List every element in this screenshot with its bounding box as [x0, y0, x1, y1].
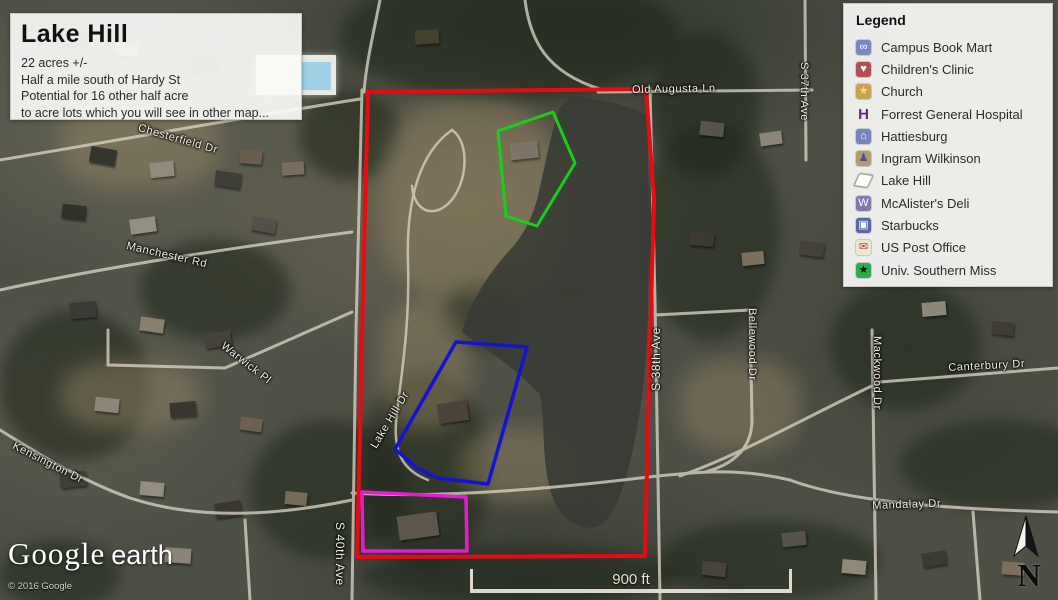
scale-bar: 900 ft — [470, 569, 792, 593]
street-label-s37: S 37th Ave — [798, 62, 810, 121]
north-indicator: N — [1004, 512, 1054, 592]
legend-item[interactable]: ▣ Starbucks — [854, 214, 1042, 236]
house-blob — [284, 491, 307, 506]
childrens-clinic-icon: ♥ — [856, 62, 871, 77]
info-line-acres: 22 acres +/- — [21, 55, 291, 72]
road-segment — [245, 520, 250, 600]
google-earth-logo: Googleearth — [8, 536, 173, 572]
street-label-bellewood: Bellewood Dr — [746, 308, 758, 381]
street-label-warwick: Warwick Pl — [219, 340, 274, 386]
house-blob — [799, 240, 825, 257]
hospital-icon: H — [856, 107, 871, 122]
legend-item-label: McAlister's Deli — [881, 196, 969, 211]
scale-label: 900 ft — [612, 571, 650, 588]
earth-logo-text: earth — [111, 540, 173, 570]
house-blob — [689, 231, 714, 247]
ingram-wilkinson-icon: ♟ — [856, 151, 871, 166]
street-label-s40: S 40th Ave — [333, 522, 347, 586]
house-blob — [94, 397, 119, 413]
info-box-title: Lake Hill — [21, 20, 291, 49]
street-label-mandalay: Mandalay Dr — [872, 498, 941, 512]
house-blob — [841, 559, 866, 575]
house-blob — [282, 161, 305, 176]
field-blob — [380, 100, 560, 300]
legend-item[interactable]: ♟ Ingram Wilkinson — [854, 147, 1042, 169]
legend-item-label: Lake Hill — [881, 173, 931, 188]
house-blob — [437, 400, 469, 424]
house-blob — [239, 149, 262, 165]
house-blob — [921, 301, 946, 317]
road-segment — [973, 512, 980, 600]
mcalisters-deli-icon: W — [856, 196, 871, 211]
house-blob — [149, 161, 174, 178]
house-blob — [214, 170, 242, 188]
house-blob — [741, 251, 764, 266]
house-blob — [251, 216, 277, 234]
map-canvas[interactable]: Chesterfield Dr Manchester Rd Warwick Pl… — [0, 0, 1058, 600]
tree-blob — [900, 420, 1058, 510]
house-blob — [921, 550, 947, 567]
copyright-text: © 2016 Google — [8, 581, 72, 592]
legend-panel: Legend ∞ Campus Book Mart ♥ Children's C… — [843, 3, 1053, 287]
house-blob — [699, 121, 724, 137]
house-blob — [214, 500, 242, 518]
legend-item[interactable]: ★ Church — [854, 81, 1042, 103]
house-blob — [139, 481, 164, 497]
house-blob — [61, 204, 86, 220]
street-label-canterbury: Canterbury Dr — [948, 358, 1025, 374]
house-blob — [759, 131, 783, 147]
lake-hill-polygon-icon — [853, 173, 873, 188]
legend-item[interactable]: ⌂ Hattiesburg — [854, 125, 1042, 147]
starbucks-icon: ▣ — [856, 218, 871, 233]
house-blob — [139, 316, 165, 333]
legend-item-label: Ingram Wilkinson — [881, 151, 981, 166]
legend-item-label: Campus Book Mart — [881, 40, 992, 55]
house-blob — [239, 417, 263, 433]
legend-item-label: Children's Clinic — [881, 62, 974, 77]
tree-blob — [830, 280, 980, 410]
street-label-mackwood: Mackwood Dr — [871, 336, 883, 410]
legend-title: Legend — [856, 12, 1042, 28]
campus-book-mart-icon: ∞ — [856, 40, 871, 55]
field-blob — [680, 360, 800, 450]
info-line-location: Half a mile south of Hardy St — [21, 72, 291, 89]
legend-item[interactable]: H Forrest General Hospital — [854, 103, 1042, 125]
info-line-potential: Potential for 16 other half acre — [21, 88, 291, 105]
legend-item[interactable]: ♥ Children's Clinic — [854, 58, 1042, 80]
church-icon: ★ — [856, 84, 871, 99]
field-blob — [60, 360, 200, 430]
street-label-s38: S 38th Ave — [649, 304, 663, 414]
legend-item[interactable]: Lake Hill — [854, 170, 1042, 192]
tree-blob — [650, 30, 760, 180]
house-blob — [129, 216, 157, 234]
legend-item-label: Starbucks — [881, 218, 939, 233]
house-blob — [991, 321, 1014, 336]
tree-blob — [340, 0, 680, 100]
google-logo-text: Google — [8, 536, 105, 571]
southern-miss-icon: ★ — [856, 263, 871, 278]
info-line-lots: to acre lots which you will see in other… — [21, 105, 291, 122]
house-blob — [169, 401, 196, 418]
legend-item-label: Church — [881, 84, 923, 99]
house-blob — [560, 281, 581, 295]
legend-item-label: Forrest General Hospital — [881, 107, 1023, 122]
info-box: Lake Hill 22 acres +/- Half a mile south… — [10, 13, 302, 120]
house-blob — [69, 301, 96, 319]
north-label: N — [1004, 560, 1054, 590]
legend-item[interactable]: ✉ US Post Office — [854, 237, 1042, 259]
house-blob — [415, 29, 440, 45]
hattiesburg-icon: ⌂ — [856, 129, 871, 144]
house-blob — [781, 531, 806, 547]
field-blob — [460, 430, 580, 500]
house-blob — [509, 141, 539, 161]
blue-roof-building — [301, 62, 331, 90]
legend-item[interactable]: ∞ Campus Book Mart — [854, 36, 1042, 58]
post-office-icon: ✉ — [856, 240, 871, 255]
legend-item-label: Univ. Southern Miss — [881, 263, 996, 278]
legend-item[interactable]: W McAlister's Deli — [854, 192, 1042, 214]
street-label-old-augusta: Old Augusta Ln — [632, 83, 716, 96]
legend-item[interactable]: ★ Univ. Southern Miss — [854, 259, 1042, 281]
legend-item-label: Hattiesburg — [881, 129, 947, 144]
legend-item-label: US Post Office — [881, 240, 966, 255]
